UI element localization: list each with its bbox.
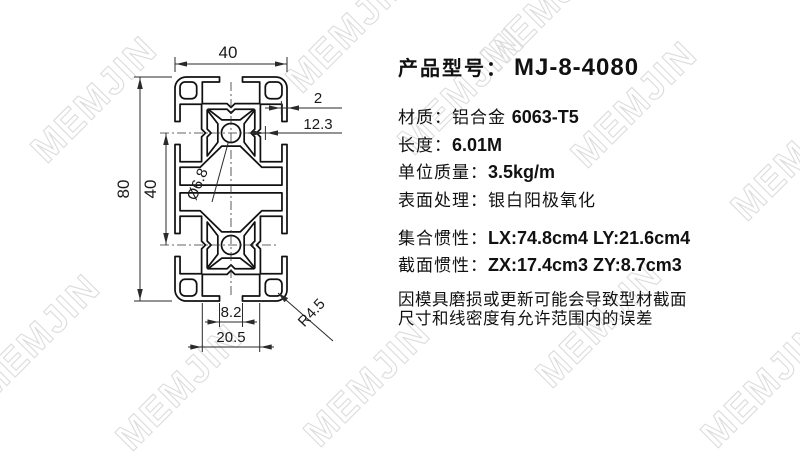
inertia-value: LX:74.8cm4 LY:21.6cm4 — [488, 228, 690, 248]
spec-text: 铝合金 — [452, 108, 512, 127]
inertia-line-1: 集合惯性：LX:74.8cm4 LY:21.6cm4 — [398, 224, 690, 249]
dim-slot-opening: 8.2 — [221, 304, 242, 321]
inertia-label: 截面惯性： — [398, 256, 488, 275]
spec-label: 表面处理： — [398, 191, 488, 210]
spec-value: 6.01M — [452, 135, 502, 155]
spec-text: 银白阳极氧化 — [488, 191, 596, 210]
disclaimer-line-2: 尺寸和线密度有允许范围内的误差 — [398, 305, 653, 329]
dim-corner-radius: R4.5 — [295, 296, 329, 331]
centerlines — [160, 82, 277, 296]
spec-label: 长度： — [398, 136, 452, 155]
product-model-label: 产品型号： — [398, 58, 508, 80]
spec-value: 6063-T5 — [512, 107, 579, 127]
product-model-line: 产品型号：MJ-8-4080 — [398, 52, 639, 82]
spec-value: 3.5kg/m — [488, 162, 555, 182]
spec-label: 材质： — [398, 108, 452, 127]
dim-top-width: 40 — [219, 43, 238, 62]
profile-technical-drawing: 40 80 40 2 12.3 Ø6.8 8.2 20.5 R4.5 — [0, 0, 390, 400]
spec-line-material: 材质：铝合金 6063-T5 — [398, 103, 579, 128]
corner-pocket — [180, 82, 197, 99]
corner-pocket — [265, 82, 282, 99]
spec-line-length: 长度：6.01M — [398, 131, 502, 156]
spec-line-surface: 表面处理：银白阳极氧化 — [398, 186, 596, 211]
inertia-label: 集合惯性： — [398, 229, 488, 248]
dim-center-offset: 12.3 — [303, 116, 332, 133]
spec-panel: 产品型号：MJ-8-4080 材质：铝合金 6063-T5 长度：6.01M 单… — [398, 0, 798, 400]
inertia-line-2: 截面惯性：ZX:17.4cm3 ZY:8.7cm3 — [398, 251, 682, 276]
product-model-value: MJ-8-4080 — [514, 54, 639, 81]
corner-pocket — [265, 279, 282, 296]
spec-line-unit-weight: 单位质量：3.5kg/m — [398, 158, 555, 183]
corner-pocket — [180, 279, 197, 296]
dim-hole-spacing: 40 — [141, 180, 160, 199]
spec-sheet-page: { "watermark": { "text": "MEMJIN", "colo… — [0, 0, 800, 400]
inertia-value: ZX:17.4cm3 ZY:8.7cm3 — [488, 255, 682, 275]
dim-overall-height: 80 — [114, 180, 133, 199]
dim-wall-thickness: 2 — [314, 90, 322, 107]
spec-label: 单位质量： — [398, 163, 488, 182]
dim-cavity-width: 20.5 — [216, 329, 245, 346]
